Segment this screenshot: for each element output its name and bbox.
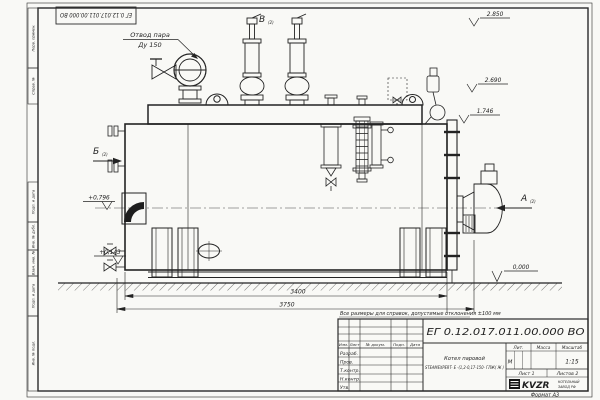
view-arrow-B-left: Б (2)	[93, 147, 122, 164]
view-letter-v-ref: (2)	[268, 20, 274, 25]
lit-label: Лит.	[513, 345, 524, 351]
row-prov: Пров.	[340, 360, 353, 366]
col-izm: Изм.	[339, 342, 348, 347]
burner	[457, 164, 502, 233]
top-stamp-doc-number: ЕГ 0.12.017.011.00.000 ВО	[60, 11, 132, 18]
strip-label: Взам. инв. №	[32, 251, 36, 276]
level-sensor-vessel	[321, 95, 341, 191]
water-level-gauge-column	[353, 96, 371, 182]
col-date: Дата	[409, 342, 421, 347]
row-razrab: Разраб.	[340, 351, 358, 357]
steam-outlet-label-2: Ду 150	[137, 41, 161, 49]
elevation-2690: 2.690	[485, 78, 502, 84]
title-doc-number: ЕГ 0.12.017.011.00.000 ВО	[427, 327, 585, 338]
manhole	[196, 241, 222, 261]
view-letter-a-ref: (2)	[530, 199, 536, 204]
tolerance-note: Все размеры для справок, допустимые откл…	[340, 311, 501, 317]
elevation-0143: +0,143	[99, 250, 121, 256]
lifting-lug	[206, 94, 423, 105]
strip-label: Справ. №	[32, 77, 36, 95]
elevation-2850: 2.850	[487, 12, 504, 18]
strip-label: Инв. № подл.	[32, 341, 36, 366]
elevation-0796: +0,796	[88, 196, 110, 202]
gauge-glass	[370, 122, 393, 168]
view-letter-b-ref: (2)	[102, 152, 108, 157]
frame-strip-labels: Перв. примен. Справ. № Подп. и дата Инв.…	[32, 25, 36, 366]
boiler-body	[125, 105, 447, 270]
elevation-marks	[83, 18, 538, 282]
col-list: Лист	[349, 342, 361, 347]
elevation-1746: 1.746	[477, 109, 494, 115]
drawing-sheet: Перв. примен. Справ. № Подп. и дата Инв.…	[0, 0, 600, 400]
safety-valve-2	[285, 14, 309, 105]
company-line-2: ЗАВОД РФ	[558, 385, 576, 389]
product-name-1: Котел паровой	[444, 356, 485, 362]
row-utv: Утв.	[340, 385, 350, 391]
pressure-gauge-assembly	[388, 68, 445, 124]
title-lit-mass-scale: Лит. Масса Масштаб	[513, 345, 583, 351]
view-letter-b: Б	[93, 147, 99, 157]
strip-label: Перв. примен.	[32, 25, 36, 52]
strip-label: Подп. и дата	[32, 190, 36, 214]
col-doc: № докум.	[365, 342, 385, 347]
row-tkontr: Т.контр.	[340, 368, 360, 374]
safety-valve	[240, 14, 264, 105]
view-letter-v: В	[259, 15, 265, 25]
dim-shell-length: 3400	[290, 289, 305, 296]
product-name-2: STEAMEXPERT- Е -(1,2-0,17-150- ГЛЖ( Ж )	[425, 365, 504, 370]
steam-outlet-label-1: Отвод пара	[130, 31, 170, 39]
ground-line	[58, 283, 562, 291]
view-arrow-V-top: В (2)	[259, 15, 274, 25]
sheet-number: Лист 1	[517, 371, 534, 377]
view-letter-a: А	[520, 194, 527, 204]
mass-label: Масса	[537, 345, 551, 351]
lit-value: М	[508, 360, 513, 366]
strip-label: Подп. и дата	[32, 284, 36, 308]
sheets-total: Листов 2	[556, 371, 579, 377]
company-logo: KVZR КОТЕЛЬНЫЙ ЗАВОД РФ	[509, 379, 580, 391]
elevation-0000: 0,000	[513, 265, 530, 271]
col-sign: Подп.	[393, 342, 405, 347]
format-note: Формат А3	[531, 393, 559, 399]
title-columns: Изм. Лист № докум. Подп. Дата	[339, 342, 421, 347]
scale-value: 1:15	[565, 359, 579, 366]
steam-outlet-valve	[150, 54, 206, 103]
dim-overall-length: 3750	[279, 302, 294, 309]
scale-label: Масштаб	[562, 345, 583, 351]
company-line-1: КОТЕЛЬНЫЙ	[558, 379, 580, 384]
strip-label: Инв. № дубл.	[32, 224, 36, 249]
row-nkontr: Н.контр.	[340, 377, 361, 383]
logo-text: KVZR	[522, 381, 549, 391]
